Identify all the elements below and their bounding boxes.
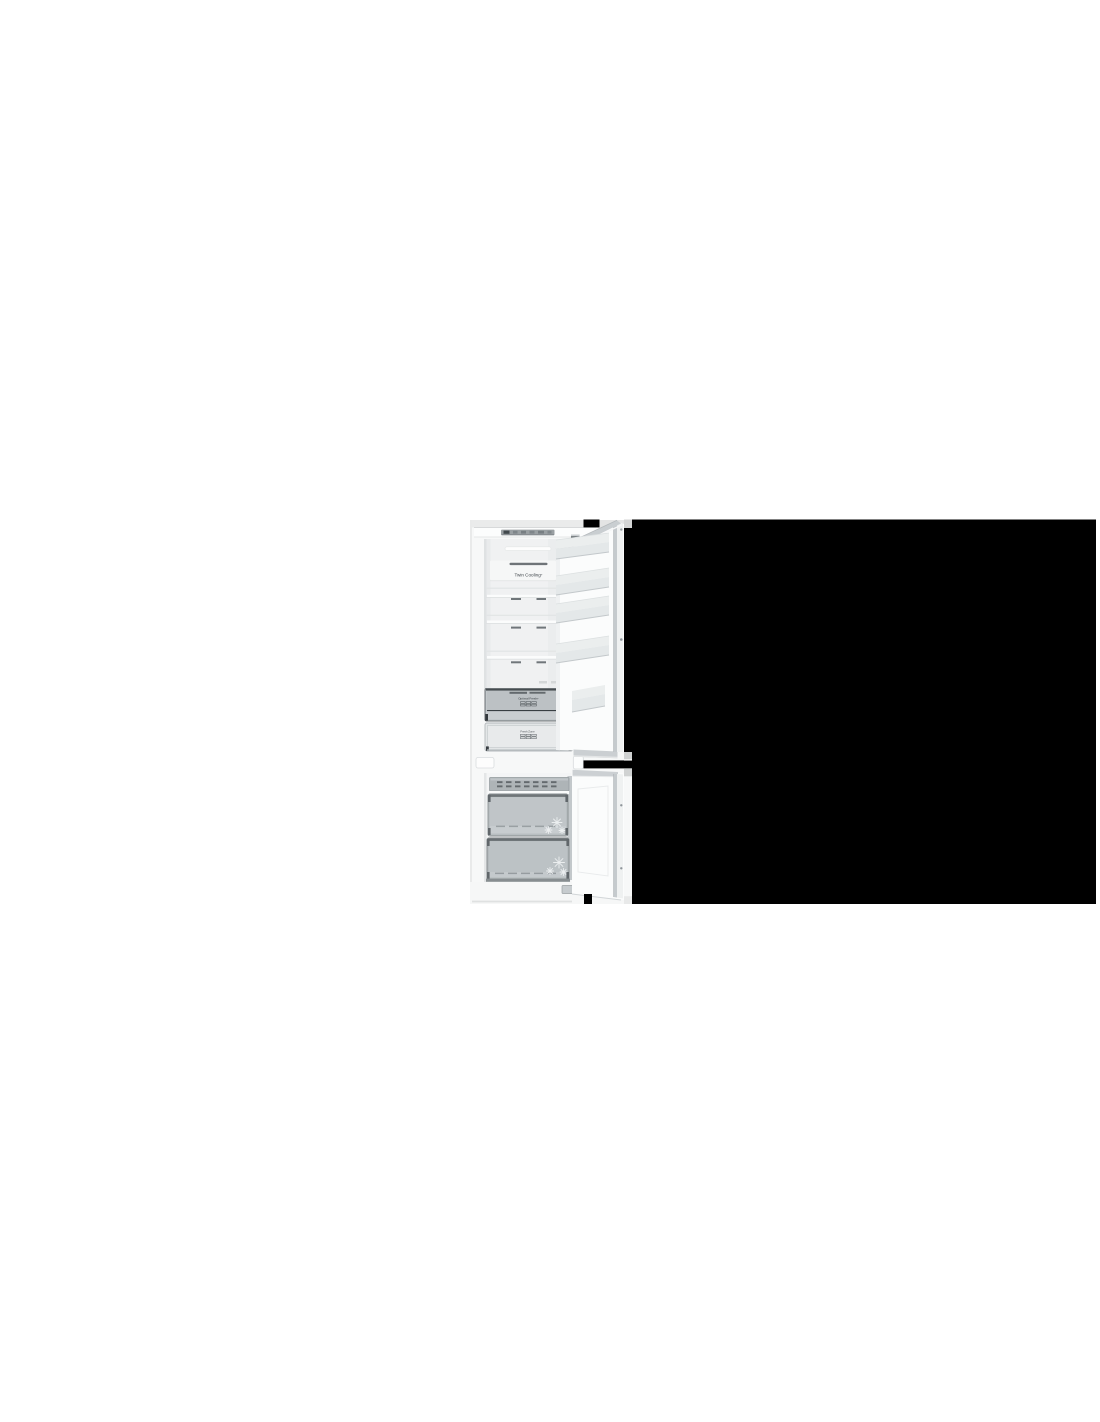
svg-text:Optimal Fresh+: Optimal Fresh+ xyxy=(518,696,539,700)
svg-text:Twin Cooling+: Twin Cooling+ xyxy=(514,572,542,577)
svg-text:Fresh Zone: Fresh Zone xyxy=(520,730,535,734)
